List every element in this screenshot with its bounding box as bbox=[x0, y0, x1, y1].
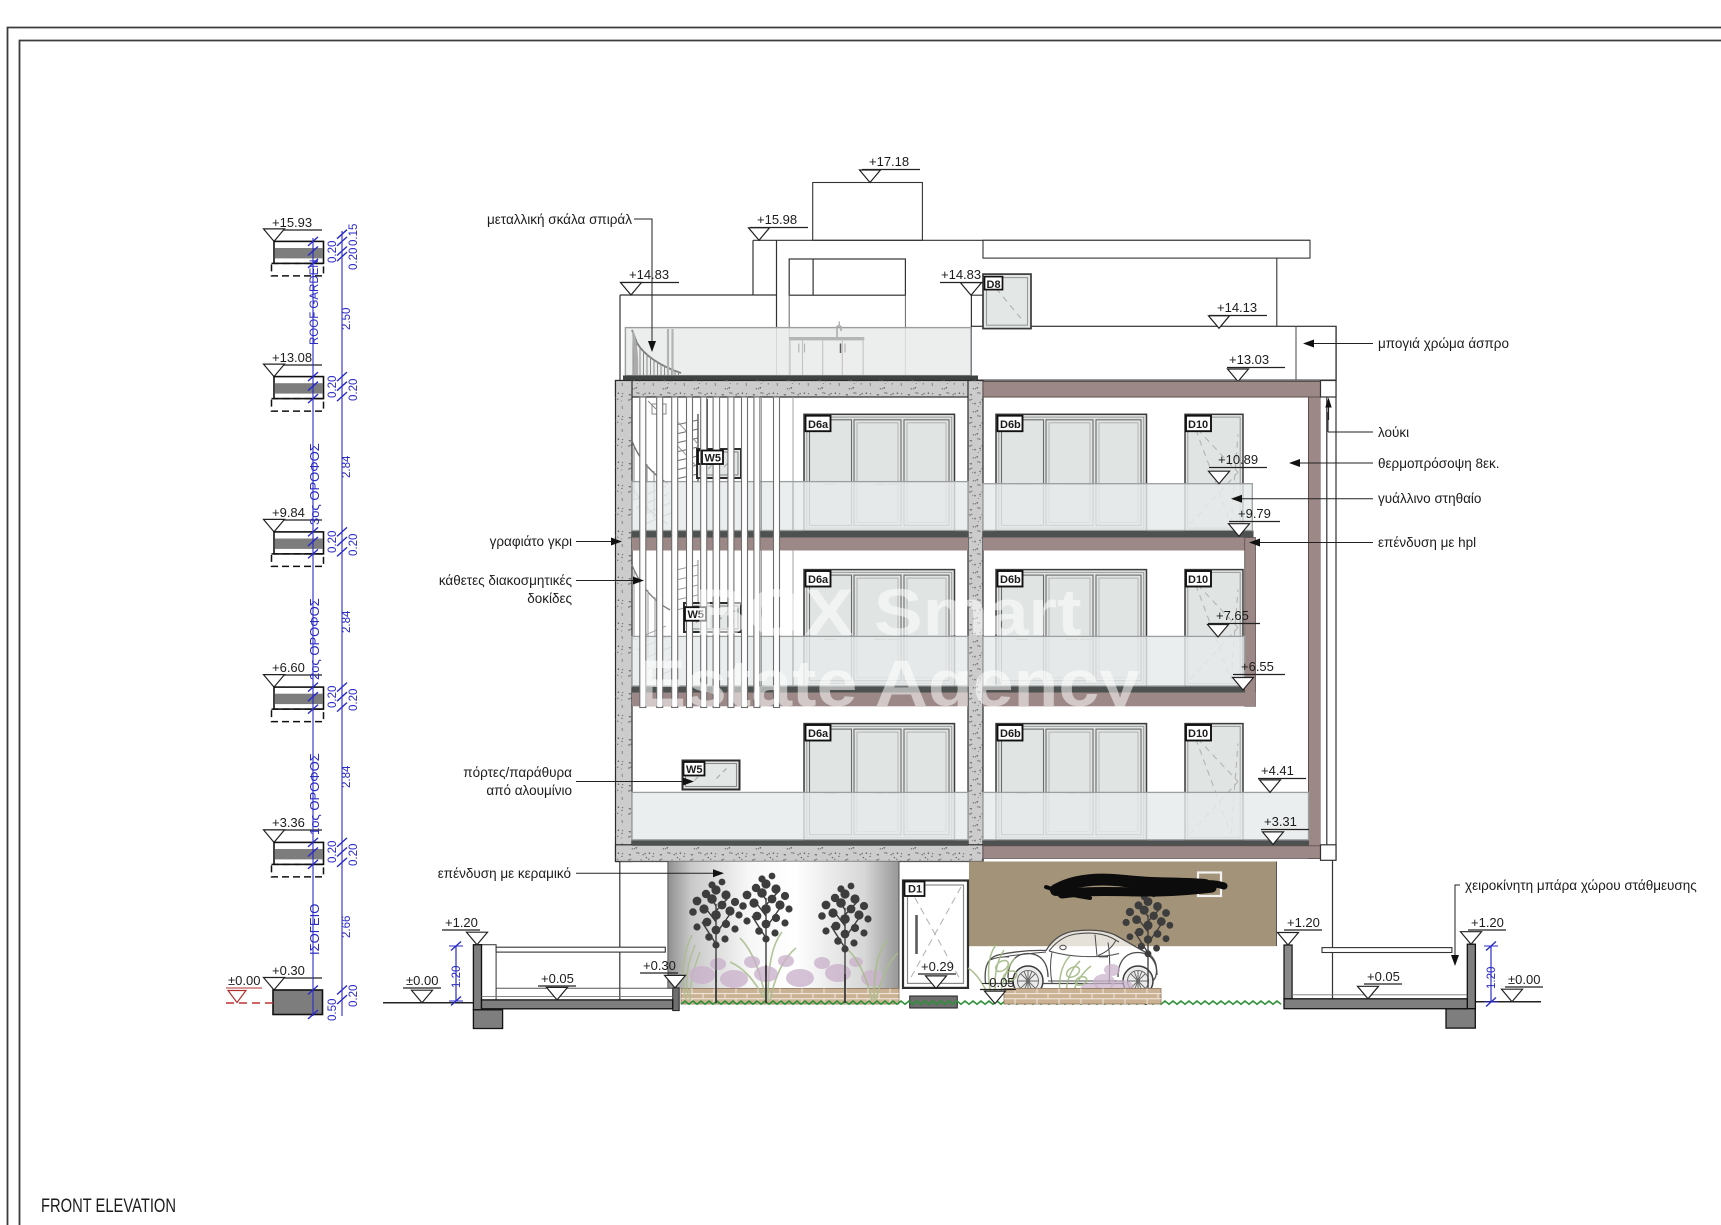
svg-text:+13.08: +13.08 bbox=[272, 350, 312, 365]
svg-text:+14.83: +14.83 bbox=[629, 267, 669, 282]
svg-text:+1.20: +1.20 bbox=[1287, 915, 1320, 930]
svg-text:+0.05: +0.05 bbox=[541, 971, 574, 986]
svg-text:0.20: 0.20 bbox=[327, 376, 339, 398]
svg-text:D10: D10 bbox=[1188, 419, 1208, 431]
svg-text:δοκίδες: δοκίδες bbox=[527, 591, 572, 606]
svg-text:0.20: 0.20 bbox=[327, 241, 339, 263]
svg-text:+0.30: +0.30 bbox=[272, 963, 305, 978]
svg-text:+6.55: +6.55 bbox=[1241, 659, 1274, 674]
svg-text:+15.93: +15.93 bbox=[272, 215, 312, 230]
svg-text:γραφιάτο γκρι: γραφιάτο γκρι bbox=[490, 534, 572, 549]
svg-text:+0.05: +0.05 bbox=[1367, 969, 1400, 984]
svg-text:0.20: 0.20 bbox=[348, 534, 360, 556]
svg-text:D1: D1 bbox=[908, 884, 922, 896]
svg-text:+3.36: +3.36 bbox=[272, 815, 305, 830]
svg-text:2.50: 2.50 bbox=[341, 308, 353, 330]
svg-text:από αλουμίνιο: από αλουμίνιο bbox=[486, 783, 572, 798]
svg-text:2.66: 2.66 bbox=[341, 916, 353, 938]
svg-text:0.20: 0.20 bbox=[348, 379, 360, 401]
svg-text:+14.83: +14.83 bbox=[941, 267, 981, 282]
svg-text:ΙΣΟΓΕΙΟ: ΙΣΟΓΕΙΟ bbox=[307, 904, 322, 955]
svg-text:+0.29: +0.29 bbox=[921, 959, 954, 974]
svg-text:+13.03: +13.03 bbox=[1229, 352, 1269, 367]
svg-text:+17.18: +17.18 bbox=[869, 154, 909, 169]
svg-text:επένδυση με κεραμικό: επένδυση με κεραμικό bbox=[438, 866, 571, 881]
svg-text:1.20: 1.20 bbox=[1486, 967, 1498, 989]
svg-text:ROOF GARDEN: ROOF GARDEN bbox=[309, 259, 321, 345]
svg-text:0.50: 0.50 bbox=[327, 999, 339, 1021]
svg-text:κάθετες διακοσμητικές: κάθετες διακοσμητικές bbox=[439, 573, 573, 588]
svg-text:BOX Smart: BOX Smart bbox=[695, 575, 1082, 649]
svg-text:+9.84: +9.84 bbox=[272, 505, 305, 520]
svg-text:θερμοπρόσοψη 8εκ.: θερμοπρόσοψη 8εκ. bbox=[1378, 456, 1500, 471]
svg-text:FRONT ELEVATION: FRONT ELEVATION bbox=[41, 1196, 176, 1217]
svg-text:D6b: D6b bbox=[1000, 728, 1021, 740]
svg-text:επένδυση με hpl: επένδυση με hpl bbox=[1378, 535, 1476, 550]
svg-text:+6.60: +6.60 bbox=[272, 660, 305, 675]
svg-text:0.20: 0.20 bbox=[348, 985, 360, 1007]
svg-text:+3.31: +3.31 bbox=[1264, 814, 1297, 829]
svg-text:0.20: 0.20 bbox=[348, 689, 360, 711]
svg-text:+0.30: +0.30 bbox=[643, 958, 676, 973]
svg-text:μεταλλική σκάλα σπιράλ: μεταλλική σκάλα σπιράλ bbox=[487, 212, 632, 227]
svg-text:D6b: D6b bbox=[1000, 419, 1021, 431]
svg-text:χειροκίνητη μπάρα χώρου στάθμε: χειροκίνητη μπάρα χώρου στάθμευσης bbox=[1465, 878, 1697, 893]
svg-text:–0.05: –0.05 bbox=[982, 975, 1015, 990]
svg-text:+10.89: +10.89 bbox=[1218, 452, 1258, 467]
svg-text:0.15: 0.15 bbox=[348, 224, 360, 246]
svg-text:±0.00: ±0.00 bbox=[1508, 972, 1540, 987]
svg-text:+7.65: +7.65 bbox=[1216, 608, 1249, 623]
svg-text:2.84: 2.84 bbox=[341, 765, 353, 788]
svg-text:W5: W5 bbox=[686, 764, 703, 776]
svg-text:γυάλλινο στηθαίο: γυάλλινο στηθαίο bbox=[1378, 491, 1481, 506]
svg-text:W5: W5 bbox=[705, 452, 722, 464]
svg-text:±0.00: ±0.00 bbox=[228, 973, 260, 988]
svg-text:λούκι: λούκι bbox=[1378, 425, 1409, 440]
svg-text:0.20: 0.20 bbox=[348, 844, 360, 866]
svg-text:2.84: 2.84 bbox=[341, 455, 353, 478]
svg-text:0.20: 0.20 bbox=[327, 531, 339, 553]
svg-text:D10: D10 bbox=[1188, 728, 1208, 740]
svg-text:μπογιά χρώμα άσπρο: μπογιά χρώμα άσπρο bbox=[1378, 336, 1509, 351]
svg-text:1.20: 1.20 bbox=[451, 966, 463, 988]
svg-text:+4.41: +4.41 bbox=[1261, 763, 1294, 778]
svg-text:πόρτες/παράθυρα: πόρτες/παράθυρα bbox=[463, 765, 572, 780]
svg-text:3ος ΟΡΟΦΟΣ: 3ος ΟΡΟΦΟΣ bbox=[307, 443, 322, 525]
svg-text:+15.98: +15.98 bbox=[757, 212, 797, 227]
svg-text:2ος ΟΡΟΦΟΣ: 2ος ΟΡΟΦΟΣ bbox=[307, 598, 322, 680]
svg-text:±0.00: ±0.00 bbox=[406, 973, 438, 988]
svg-text:D8: D8 bbox=[987, 279, 1001, 291]
svg-text:+1.20: +1.20 bbox=[1471, 915, 1504, 930]
svg-text:Estate Agency: Estate Agency bbox=[637, 646, 1140, 720]
svg-text:D6a: D6a bbox=[808, 419, 829, 431]
svg-text:0.20: 0.20 bbox=[327, 841, 339, 863]
svg-text:D10: D10 bbox=[1188, 574, 1208, 586]
svg-text:+14.13: +14.13 bbox=[1217, 300, 1257, 315]
svg-text:D6a: D6a bbox=[808, 728, 829, 740]
svg-text:+1.20: +1.20 bbox=[445, 915, 478, 930]
svg-text:1ος ΟΡΟΦΟΣ: 1ος ΟΡΟΦΟΣ bbox=[307, 753, 322, 835]
svg-text:2.84: 2.84 bbox=[341, 610, 353, 633]
svg-text:+9.79: +9.79 bbox=[1238, 506, 1271, 521]
svg-text:0.20: 0.20 bbox=[348, 248, 360, 270]
svg-text:0.20: 0.20 bbox=[327, 686, 339, 708]
